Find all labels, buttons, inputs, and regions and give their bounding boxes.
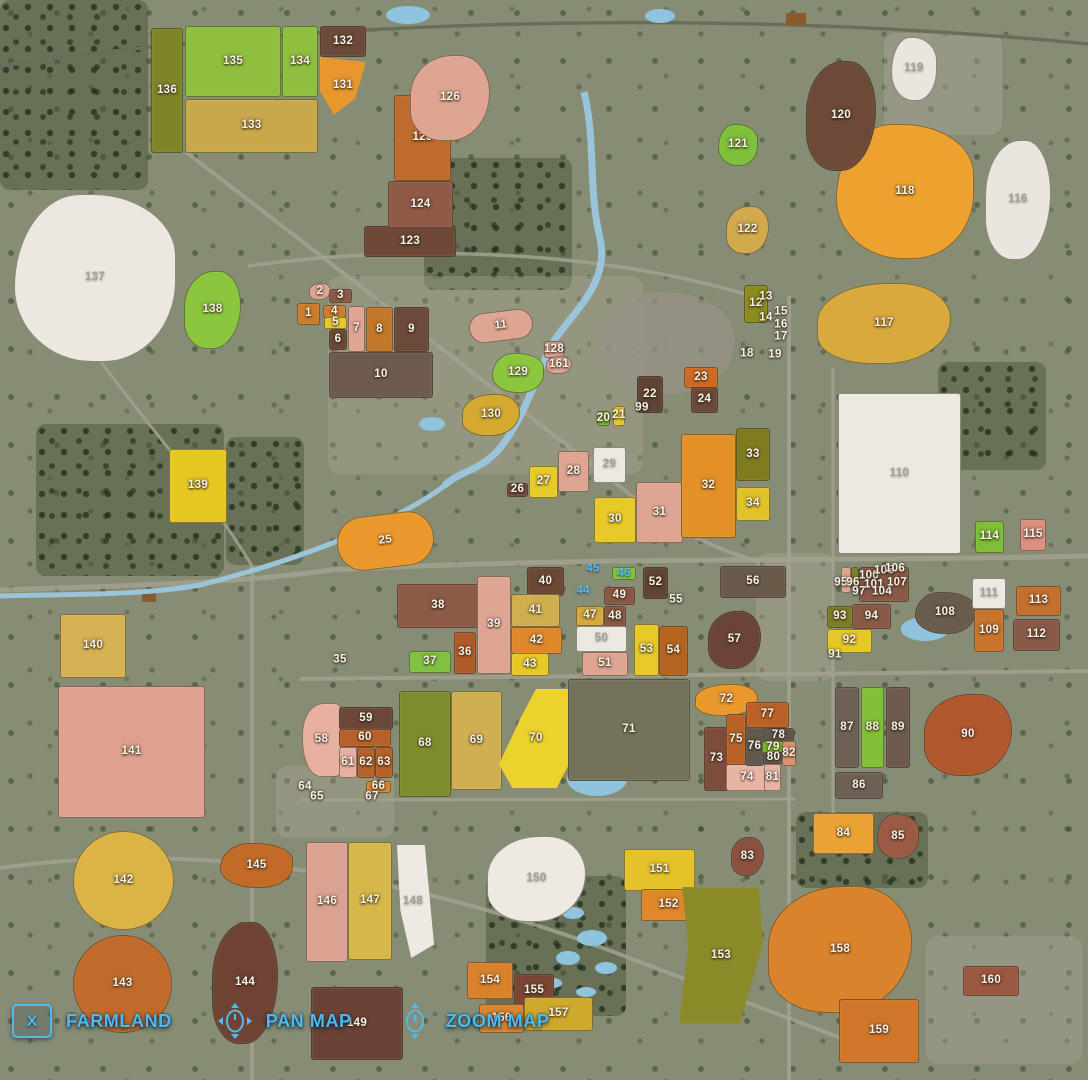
field-parcel-5[interactable]: 5 [324,317,347,329]
field-parcel-74[interactable]: 74 [726,764,768,791]
field-parcel-119[interactable]: 119 [891,37,937,101]
field-number: 10 [374,369,387,381]
field-number: 109 [979,625,999,637]
field-parcel-88[interactable]: 88 [861,687,884,768]
field-number: 11 [494,320,508,333]
field-parcel-47[interactable]: 47 [576,606,604,626]
field-parcel-42[interactable]: 42 [511,627,562,654]
field-parcel-134[interactable]: 134 [282,26,318,97]
field-number: 5 [332,317,339,329]
field-parcel-147[interactable]: 147 [348,842,392,960]
field-number: 23 [694,372,707,384]
field-number: 25 [378,534,393,547]
field-number: 86 [852,780,865,792]
field-number: 111 [980,588,999,600]
field-number: 51 [598,658,611,670]
field-parcel-9[interactable]: 9 [394,307,429,352]
field-number: 70 [529,733,542,745]
field-number: 49 [613,590,626,602]
field-number: 80 [767,752,780,764]
field-parcel-133[interactable]: 133 [185,99,318,153]
field-number: 83 [741,851,754,863]
field-number: 39 [487,619,500,631]
field-number: 22 [643,389,656,401]
field-number: 135 [223,56,243,68]
field-number: 60 [358,732,371,744]
field-99-label[interactable]: 99 [635,402,648,414]
field-number: 53 [640,644,653,656]
field-number: 41 [529,605,542,617]
field-parcel-38[interactable]: 38 [397,584,479,628]
field-number: 147 [360,895,380,907]
field-number: 137 [85,272,105,284]
field-number: 68 [418,738,431,750]
field-number: 139 [188,480,208,492]
field-number: 94 [865,611,878,623]
field-parcel-129[interactable]: 129 [492,353,544,393]
field-parcel-108[interactable]: 108 [915,592,975,634]
field-number: 90 [961,729,974,741]
field-parcel-139[interactable]: 139 [169,449,227,523]
field-35-label[interactable]: 35 [333,654,346,666]
field-number: 161 [549,359,569,371]
field-19-label[interactable]: 19 [768,349,781,361]
field-44-label[interactable]: 44 [576,585,589,597]
field-parcel-40[interactable]: 40 [527,567,564,596]
field-parcel-94[interactable]: 94 [852,604,891,629]
field-14-label[interactable]: 14 [759,312,772,324]
field-number: 159 [869,1025,889,1037]
field-parcel-160[interactable]: 160 [963,966,1019,996]
field-number: 28 [567,466,580,478]
field-parcel-37[interactable]: 37 [409,651,451,673]
field-parcel-110[interactable]: 110 [838,393,961,554]
field-parcel-86[interactable]: 86 [835,772,883,799]
field-parcel-151[interactable]: 151 [624,849,695,891]
field-parcel-62[interactable]: 62 [357,747,375,778]
field-parcel-46[interactable]: 46 [612,567,636,580]
field-number: 118 [895,186,914,198]
field-parcel-21[interactable]: 21 [613,406,625,426]
field-number: 71 [622,724,635,736]
field-parcel-50[interactable]: 50 [576,626,627,652]
field-parcel-20[interactable]: 20 [597,411,610,426]
field-parcel-60[interactable]: 60 [339,729,391,747]
field-parcel-85[interactable]: 85 [877,814,919,859]
field-parcel-111[interactable]: 111 [972,578,1006,609]
field-parcel-41[interactable]: 41 [511,594,560,627]
field-number: 138 [202,304,222,316]
field-number: 145 [246,860,266,872]
field-parcel-154[interactable]: 154 [467,962,513,999]
field-number: 46 [617,568,630,580]
field-number: 82 [782,748,795,760]
field-number: 141 [121,746,141,758]
field-parcel-39[interactable]: 39 [477,576,511,674]
field-number: 148 [403,896,423,908]
field-parcel-26[interactable]: 26 [507,483,528,497]
field-number: 144 [235,977,255,989]
field-number: 40 [539,576,552,588]
field-parcel-112[interactable]: 112 [1013,619,1060,651]
field-number: 140 [83,640,103,652]
field-number: 62 [359,757,372,769]
field-number: 31 [653,507,666,519]
field-91-label[interactable]: 91 [828,649,841,661]
field-number: 157 [548,1008,568,1020]
field-number: 93 [833,611,846,623]
field-number: 27 [537,476,550,488]
field-number: 115 [1023,529,1042,541]
field-number: 37 [423,656,436,668]
field-number: 58 [315,734,328,746]
field-16-label[interactable]: 16 [774,319,787,331]
field-parcel-159[interactable]: 159 [839,999,919,1063]
mouse-pan-icon [218,1003,252,1039]
field-number: 2 [317,286,324,298]
field-number: 29 [603,459,616,471]
field-number: 87 [840,722,853,734]
field-number: 152 [658,899,678,911]
field-67-label[interactable]: 67 [365,791,378,803]
field-number: 136 [157,85,177,97]
field-parcel-77[interactable]: 77 [746,702,789,728]
farmland-map-screen: 1234567891011121314151617181920212223242… [0,0,1088,1080]
field-parcel-82[interactable]: 82 [782,741,796,766]
field-number: 134 [290,56,310,68]
field-number: 74 [740,772,753,784]
field-number: 26 [511,484,524,496]
field-number: 121 [728,139,748,151]
field-number: 89 [891,722,904,734]
field-107-label[interactable]: 107 [887,577,907,589]
field-parcel-7[interactable]: 7 [348,306,365,352]
field-number: 50 [595,633,608,645]
field-parcel-136[interactable]: 136 [151,28,183,153]
field-parcel-56[interactable]: 56 [720,566,786,598]
field-number: 7 [353,323,360,335]
field-number: 117 [874,318,893,330]
field-parcel-52[interactable]: 52 [643,567,668,599]
field-number: 132 [333,36,353,48]
field-45-label[interactable]: 45 [586,563,599,575]
field-parcel-137[interactable]: 137 [14,194,176,362]
field-number: 63 [377,757,390,769]
field-number: 42 [530,635,543,647]
field-13-label[interactable]: 13 [759,291,772,303]
field-number: 123 [400,236,420,248]
field-number: 54 [667,645,680,657]
field-parcel-115[interactable]: 115 [1020,519,1046,551]
field-106-label[interactable]: 106 [885,563,905,575]
field-number: 32 [702,480,715,492]
field-number: 24 [698,394,711,406]
field-number: 69 [470,735,483,747]
field-parcel-31[interactable]: 31 [636,482,683,543]
field-parcel-30[interactable]: 30 [594,497,636,543]
field-number: 1 [305,308,312,320]
field-number: 153 [711,950,731,962]
field-number: 20 [597,413,610,425]
field-number: 110 [890,468,909,480]
field-number: 112 [1027,629,1046,641]
field-number: 36 [458,647,471,659]
field-number: 48 [608,611,621,623]
field-number: 151 [649,864,669,876]
field-parcel-93[interactable]: 93 [827,606,853,628]
field-parcel-142[interactable]: 142 [73,831,174,930]
field-number: 77 [761,709,774,721]
field-parcel-24[interactable]: 24 [691,387,718,413]
field-number: 85 [891,831,904,843]
field-number: 154 [480,975,500,987]
field-55-label[interactable]: 55 [669,594,682,606]
field-parcel-51[interactable]: 51 [582,652,628,676]
field-number: 122 [737,224,757,236]
field-15-label[interactable]: 15 [774,306,787,318]
field-number: 126 [440,92,460,104]
field-number: 34 [746,498,759,510]
field-parcel-3[interactable]: 3 [329,289,352,303]
field-parcel-135[interactable]: 135 [185,26,281,97]
field-number: 129 [508,367,528,379]
field-number: 9 [408,324,415,336]
field-number: 76 [748,741,761,753]
field-number: 6 [335,334,342,346]
field-parcel-114[interactable]: 114 [975,521,1004,553]
field-number: 73 [710,753,723,765]
field-parcel-53[interactable]: 53 [634,624,659,676]
field-parcel-63[interactable]: 63 [375,747,393,778]
field-parcel-109[interactable]: 109 [974,609,1004,652]
field-parcel-59[interactable]: 59 [339,707,393,730]
field-number: 150 [526,873,546,885]
field-number: 84 [837,828,850,840]
field-number: 52 [649,577,662,589]
field-parcel-113[interactable]: 113 [1016,586,1061,616]
field-parcel-71[interactable]: 71 [568,679,690,781]
field-parcel-34[interactable]: 34 [736,487,770,521]
field-parcel-61[interactable]: 61 [339,747,357,778]
field-number: 57 [728,634,741,646]
field-number: 114 [980,531,999,543]
field-number: 158 [830,944,850,956]
field-parcel-87[interactable]: 87 [835,687,859,768]
field-number: 81 [766,772,779,784]
field-parcel-141[interactable]: 141 [58,686,205,818]
field-number: 124 [410,199,430,211]
field-parcel-6[interactable]: 6 [329,329,347,350]
field-number: 143 [112,978,132,990]
field-parcel-81[interactable]: 81 [764,764,781,791]
field-number: 75 [729,734,742,746]
field-parcel-121[interactable]: 121 [718,124,758,166]
farmland-label: FARMLAND [66,1011,172,1032]
field-parcel-36[interactable]: 36 [454,632,476,674]
field-number: 3 [337,290,344,302]
field-parcel-145[interactable]: 145 [220,843,293,888]
field-number: 38 [431,600,444,612]
field-number: 146 [317,896,337,908]
field-17-label[interactable]: 17 [774,331,787,343]
field-number: 116 [1008,194,1027,206]
field-number: 59 [359,713,372,725]
field-number: 88 [866,722,879,734]
field-number: 120 [831,110,851,122]
field-number: 131 [333,80,353,92]
field-parcel-80[interactable]: 80 [763,752,784,764]
field-parcel-140[interactable]: 140 [60,614,126,678]
field-number: 8 [376,324,383,336]
field-parcel-10[interactable]: 10 [329,352,433,398]
rail-bridge [786,13,806,25]
field-number: 119 [904,63,923,75]
zoom-map-label[interactable]: ZOOM MAP [446,1011,550,1032]
field-number: 113 [1029,595,1048,607]
field-parcel-124[interactable]: 124 [388,181,453,228]
bottom-hud: X FARMLAND PAN MAP [0,1000,549,1042]
field-parcel-58[interactable]: 58 [302,703,341,777]
field-parcel-32[interactable]: 32 [681,434,736,538]
field-parcel-68[interactable]: 68 [399,691,451,797]
pan-map-label[interactable]: PAN MAP [266,1011,352,1032]
field-parcel-123[interactable]: 123 [364,226,456,257]
field-parcel-54[interactable]: 54 [659,626,688,676]
field-parcel-48[interactable]: 48 [604,606,626,628]
field-parcel-27[interactable]: 27 [529,466,558,498]
field-number: 56 [746,576,759,588]
field-parcel-49[interactable]: 49 [604,587,635,605]
close-button[interactable]: X [12,1004,52,1038]
field-parcel-33[interactable]: 33 [736,428,770,481]
field-parcel-1[interactable]: 1 [297,303,320,325]
field-parcel-69[interactable]: 69 [451,691,502,790]
field-number: 47 [583,610,596,622]
field-number: 78 [772,730,785,742]
field-number: 160 [981,975,1001,987]
field-number: 33 [746,449,759,461]
field-parcel-132[interactable]: 132 [320,26,366,57]
field-number: 133 [241,120,261,132]
field-18-label[interactable]: 18 [740,348,753,360]
field-number: 108 [935,607,955,619]
field-parcel-146[interactable]: 146 [306,842,348,962]
field-parcel-84[interactable]: 84 [813,813,874,854]
field-65-label[interactable]: 65 [310,791,323,803]
field-number: 142 [113,875,133,887]
field-parcel-75[interactable]: 75 [726,714,746,765]
field-parcel-28[interactable]: 28 [558,451,589,492]
field-number: 130 [481,409,501,421]
field-number: 43 [523,659,536,671]
field-number: 21 [612,410,625,422]
field-number: 72 [720,694,733,706]
field-parcel-23[interactable]: 23 [684,367,718,388]
field-number: 30 [608,514,621,526]
field-parcel-8[interactable]: 8 [366,307,393,352]
field-parcel-89[interactable]: 89 [886,687,910,768]
field-number: 92 [843,635,856,647]
field-parcel-29[interactable]: 29 [593,447,626,483]
field-number: 128 [544,344,564,356]
field-parcel-43[interactable]: 43 [511,653,549,676]
field-number: 61 [341,757,354,769]
mouse-zoom-icon [398,1003,432,1039]
field-number: 155 [524,985,544,997]
